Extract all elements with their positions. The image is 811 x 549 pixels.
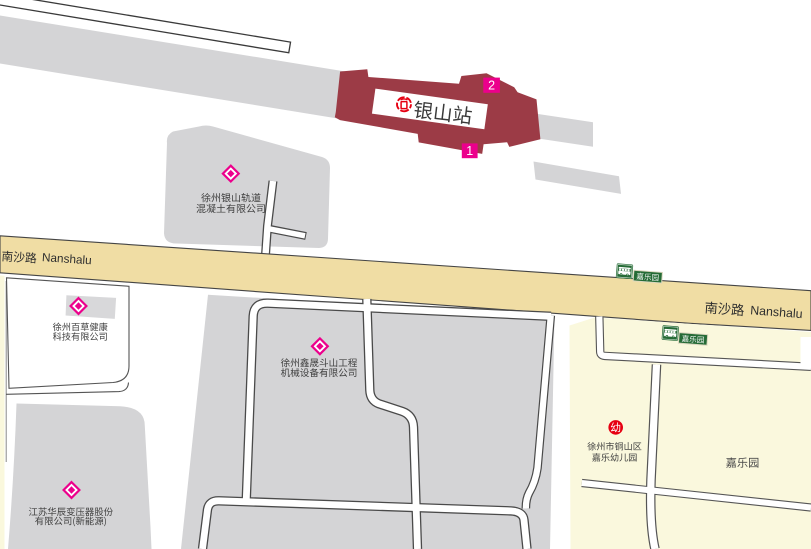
svg-text:2: 2 xyxy=(488,79,495,93)
svg-text:1: 1 xyxy=(466,144,473,158)
